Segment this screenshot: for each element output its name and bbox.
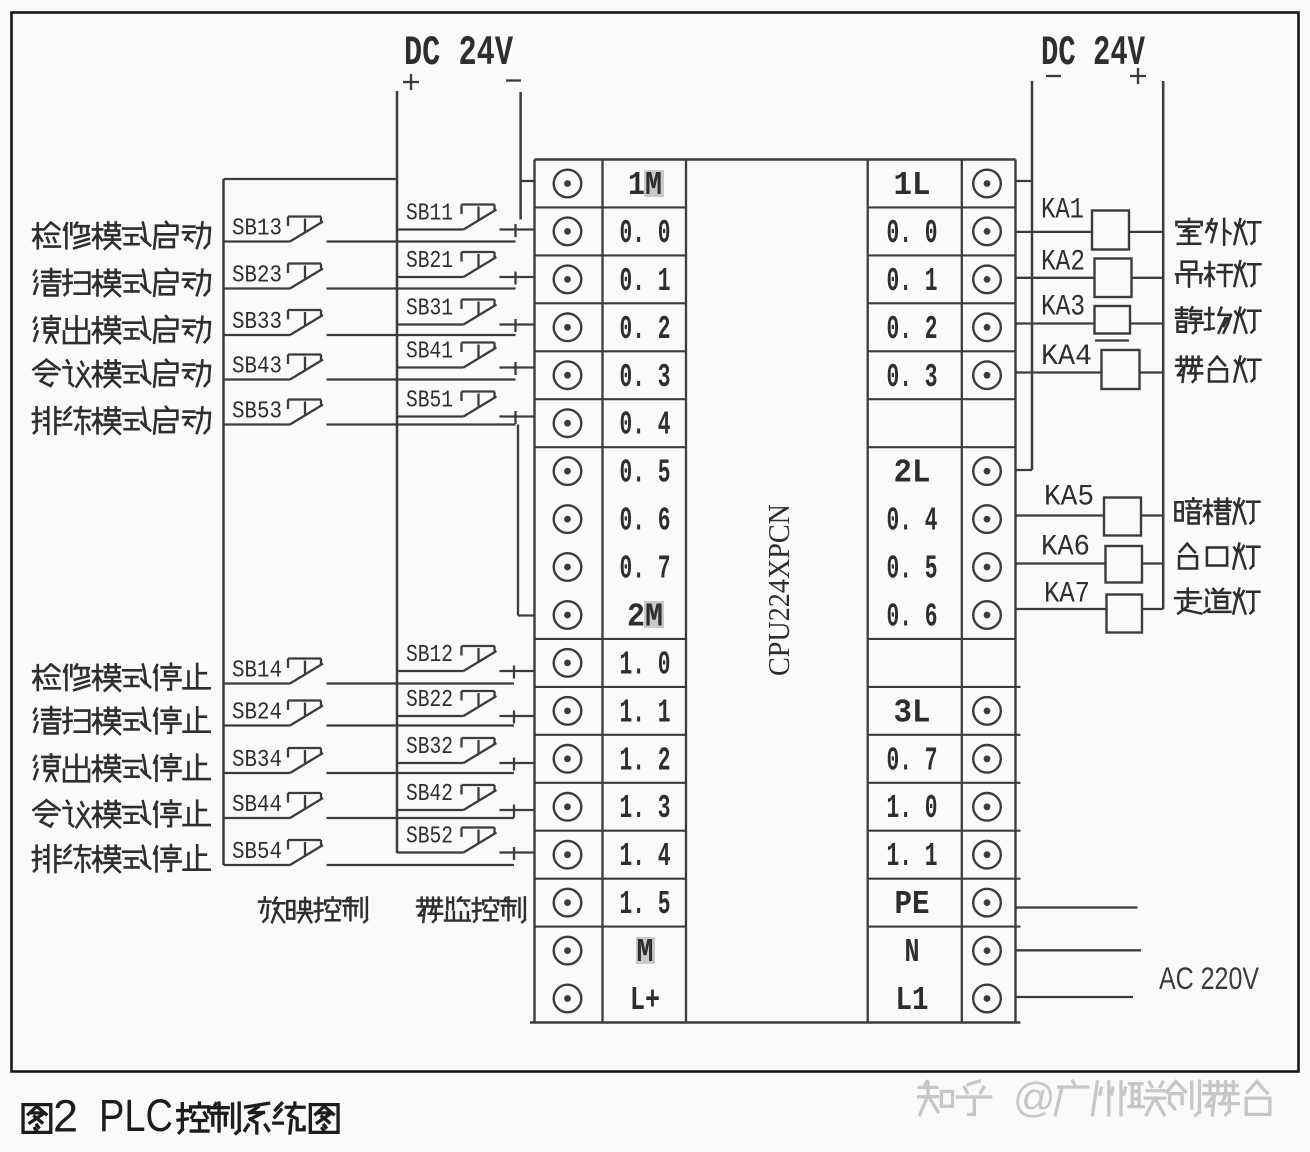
svg-text:L1: L1 [896, 982, 929, 1019]
svg-text:0. 4: 0. 4 [887, 503, 938, 540]
svg-text:2M: 2M [627, 599, 663, 636]
svg-text:0. 7: 0. 7 [887, 742, 938, 779]
svg-text:SB51: SB51 [406, 388, 453, 415]
svg-text:KA6: KA6 [1041, 531, 1090, 565]
svg-text:0. 3: 0. 3 [887, 359, 938, 396]
svg-text:PE: PE [895, 886, 930, 923]
svg-text:0. 2: 0. 2 [887, 311, 938, 348]
svg-text:KA7: KA7 [1044, 578, 1090, 612]
svg-text:SB42: SB42 [406, 781, 453, 808]
svg-text:SB32: SB32 [406, 734, 453, 761]
svg-text:KA3: KA3 [1041, 291, 1085, 325]
svg-text:1. 4: 1. 4 [620, 838, 671, 875]
svg-text:1L: 1L [894, 167, 931, 204]
svg-text:0. 7: 0. 7 [620, 551, 671, 588]
svg-text:SB23: SB23 [232, 263, 282, 290]
svg-text:0. 0: 0. 0 [620, 215, 671, 252]
svg-text:1. 1: 1. 1 [887, 838, 938, 875]
svg-text:1. 2: 1. 2 [620, 742, 671, 779]
svg-text:SB14: SB14 [232, 658, 282, 685]
svg-text:KA1: KA1 [1041, 194, 1084, 228]
svg-text:KA2: KA2 [1041, 246, 1085, 280]
svg-text:DC 24V: DC 24V [1041, 29, 1146, 77]
svg-text:0. 6: 0. 6 [620, 503, 671, 540]
svg-text:SB22: SB22 [406, 687, 453, 714]
svg-text:0. 0: 0. 0 [887, 215, 938, 252]
svg-text:0. 5: 0. 5 [620, 455, 671, 492]
svg-text:0. 2: 0. 2 [620, 311, 671, 348]
svg-text:0. 5: 0. 5 [887, 551, 938, 588]
svg-text:SB43: SB43 [232, 354, 282, 381]
svg-text:0. 1: 0. 1 [620, 263, 671, 300]
svg-text:SB53: SB53 [232, 399, 282, 426]
svg-text:N: N [905, 934, 920, 971]
svg-text:SB54: SB54 [232, 839, 282, 866]
svg-text:1. 5: 1. 5 [620, 886, 671, 923]
svg-text:0. 6: 0. 6 [887, 599, 938, 636]
svg-text:SB44: SB44 [232, 792, 282, 819]
svg-text:CPU224XPCN: CPU224XPCN [761, 504, 796, 676]
svg-text:KA5: KA5 [1044, 481, 1094, 515]
svg-text:0. 3: 0. 3 [620, 359, 671, 396]
svg-text:SB13: SB13 [232, 216, 282, 243]
svg-text:1M: 1M [628, 167, 662, 204]
svg-text:KA4: KA4 [1041, 340, 1092, 374]
svg-text:M: M [637, 934, 654, 971]
svg-text:0. 4: 0. 4 [620, 407, 671, 444]
svg-text:SB21: SB21 [406, 248, 453, 275]
svg-text:@: @ [1013, 1074, 1056, 1121]
svg-text:AC 220V: AC 220V [1159, 960, 1259, 996]
svg-text:2L: 2L [894, 455, 931, 492]
svg-text:1. 1: 1. 1 [620, 694, 671, 731]
svg-text:SB31: SB31 [406, 296, 453, 323]
svg-text:SB52: SB52 [406, 824, 453, 851]
svg-text:SB11: SB11 [406, 201, 453, 228]
svg-text:0. 1: 0. 1 [887, 263, 938, 300]
svg-text:3L: 3L [894, 694, 931, 731]
svg-text:1. 0: 1. 0 [887, 790, 938, 827]
svg-text:1. 3: 1. 3 [620, 790, 671, 827]
svg-text:PLC: PLC [99, 1090, 173, 1141]
svg-text:L+: L+ [630, 982, 660, 1019]
svg-text:SB34: SB34 [232, 747, 282, 774]
svg-text:1. 0: 1. 0 [620, 646, 671, 683]
svg-text:SB12: SB12 [406, 642, 453, 669]
svg-text:SB41: SB41 [406, 339, 453, 366]
svg-text:2: 2 [53, 1091, 78, 1142]
svg-text:SB33: SB33 [232, 309, 282, 336]
svg-text:DC 24V: DC 24V [404, 29, 514, 77]
svg-text:SB24: SB24 [232, 700, 282, 727]
